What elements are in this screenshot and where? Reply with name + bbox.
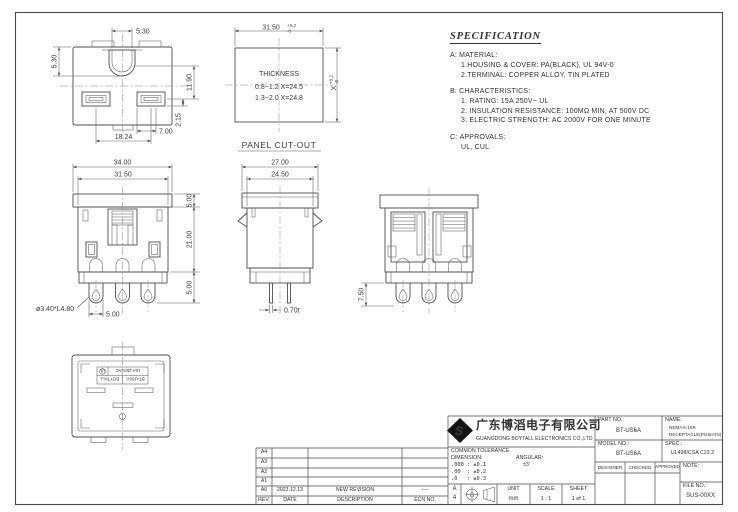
cutout-thickness-title: THICKNESS — [259, 71, 299, 78]
spec-item: 2. INSULATION RESISTANCE: 100MΩ MIN, AT … — [461, 107, 738, 117]
file-no-value: SUS-00XX — [686, 493, 715, 500]
cutout-caption: PANEL CUT-OUT — [242, 140, 317, 150]
spec-section-heading: CHARACTERISTICS: — [459, 88, 530, 95]
angular-value: ±3' — [523, 463, 530, 469]
side-dim-2700: 27.00 — [271, 160, 289, 167]
revision-row-rev: A0 — [256, 488, 272, 494]
bottom-label-rating: 15A 250VAC — [116, 368, 141, 373]
face-dim-1190: 11.90 — [187, 74, 194, 91]
face-dim-top-offset: 5.30 — [52, 55, 59, 69]
spec-value: UL498/CSA C22.2 — [663, 451, 722, 457]
cutout-thickness-row2: 1.3~2.0 X=24.8 — [255, 95, 303, 102]
spec-section-approvals: C: APPROVALS: UL, CUL — [450, 134, 738, 153]
part-no-value: BT-US6A — [595, 428, 662, 435]
designer-label: DESIGNER — [595, 465, 625, 470]
revision-row-description: NEW REVISION — [308, 488, 402, 494]
revision-header-rev: REV. — [256, 498, 272, 504]
spec-item: UL, CUL — [461, 143, 738, 153]
cutout-tol-minus: -0 — [287, 29, 292, 34]
cutout-tol-plus: +0.2 — [287, 23, 297, 28]
unit-value: mm — [497, 496, 530, 503]
front-view: 34.00 31.50 5.00 21.00 5.00 ø3.40*L4.80 … — [36, 160, 200, 319]
revision-row-rev: A3 — [256, 460, 272, 466]
cutout-x-tol-plus: +0.2 — [329, 74, 334, 84]
sheet-size-letter: A — [448, 486, 461, 493]
angular-label: ANGULAR: — [516, 456, 543, 462]
revision-header-description: DESCRIPTION — [308, 498, 402, 504]
scale-value: 1 : 1 — [530, 496, 562, 502]
panel-cutout-view: 31.50 +0.2 -0 X +0.2 -0 THICKNESS 0.8~1.… — [225, 23, 341, 151]
face-dim-1824: 18.24 — [115, 134, 133, 141]
company-logo: S — [447, 418, 473, 443]
part-no-label: PART NO.: — [598, 418, 624, 424]
bottom-label-ul-mark: UL — [99, 369, 105, 374]
bottom-label-brand: BOYTALL — [99, 377, 119, 382]
front-dim-500-bottom: 5.00 — [187, 281, 194, 295]
sheet-size-number: 4 — [448, 495, 461, 502]
specification-title: SPECIFICATION — [450, 31, 541, 44]
checked-label: CHECKED — [625, 465, 655, 470]
unit-label: UNIT — [497, 487, 530, 493]
scale-label: SCALE — [530, 487, 562, 493]
cutout-x-tol-minus: -0 — [334, 79, 339, 84]
face-dim-slot-width: 5.30 — [136, 29, 150, 36]
revision-header-date: DATE — [272, 498, 308, 504]
drawing-sheet: 5.30 5.30 11.90 2.15 7.00 18.24 31.50 — [0, 0, 738, 512]
svg-text:S: S — [455, 424, 463, 438]
bottom-label-model: BT-US6A — [126, 377, 144, 382]
cutout-thickness-row1: 0.8~1.2 X=24.5 — [255, 84, 303, 91]
spec-item: 1.HOUSING & COVER: PA(BLACK), UL 94V-0 — [461, 61, 738, 71]
front-dim-2100: 21.00 — [187, 231, 194, 249]
side-dim-2450: 24.50 — [271, 172, 289, 179]
revision-row-date: 2023.12.13 — [272, 488, 308, 494]
cutout-dim-width: 31.50 — [262, 25, 280, 32]
revision-row-rev: A1 — [256, 479, 272, 485]
sheet-label: SHEET — [562, 487, 595, 493]
model-no-label: MODEL NO.: — [598, 442, 629, 448]
face-dim-700: 7.00 — [159, 129, 173, 136]
sheet-value: 1 of 1 — [562, 496, 595, 502]
cutout-dim-x: X — [331, 85, 338, 90]
face-view: 5.30 5.30 11.90 2.15 7.00 18.24 — [52, 28, 200, 144]
spec-section-characteristics: B: CHARACTERISTICS: 1. RATING: 15A 250V~… — [450, 88, 738, 126]
model-no-value: BT-US6A — [595, 451, 662, 458]
bottom-view: UL 15A 250VAC BOYTALL BT-US6A — [72, 342, 170, 449]
front-dim-500-top: 5.00 — [187, 194, 194, 208]
spec-item: 3. ELECTRIC STRENGTH: AC 2000V FOR ONE M… — [461, 116, 738, 126]
side-dim-070: 0.70t — [284, 308, 300, 315]
spec-section-heading: APPROVALS: — [460, 134, 506, 141]
spec-section-material: A: MATERIAL: 1.HOUSING & COVER: PA(BLACK… — [450, 52, 738, 80]
tolerance-row-2: .00 : ±0.2 — [451, 470, 486, 476]
name-value-line2: RECEPTACLE(PUSH-IN) — [669, 432, 721, 437]
projection-symbol-icon — [465, 487, 495, 502]
front-dim-pin: ø3.40*L4.80 — [36, 306, 74, 313]
revision-row-rev: A2 — [256, 470, 272, 476]
tolerance-title: COMMON TOLERANCE — [451, 449, 509, 455]
approved-label: APPROVED — [655, 465, 680, 470]
back-view: 7.50 — [359, 188, 479, 314]
front-dim-3400: 34.00 — [114, 160, 132, 167]
spec-item: 2.TERMINAL: COPPER ALLOY, TIN PLATED — [461, 71, 738, 81]
side-view: 27.00 24.50 0.70t — [238, 160, 322, 315]
spec-item: 1. RATING: 15A 250V~ UL — [461, 97, 738, 107]
spec-section-label: C: — [450, 134, 457, 141]
back-dim-750: 7.50 — [359, 288, 366, 302]
file-no-label: FILE NO.: — [683, 484, 707, 490]
tolerance-row-1: .000 : ±0.1 — [451, 463, 486, 469]
company-name-cn: 广东博滔电子有限公司 — [476, 419, 593, 432]
tolerance-row-3: .0 : ±0.3 — [451, 477, 486, 483]
note-label: NOTE: — [683, 464, 699, 470]
revision-header-ecn: ECN NO. — [402, 498, 448, 504]
front-dim-500-pitch: 5.00 — [106, 312, 120, 319]
front-dim-3150: 31.50 — [114, 172, 132, 179]
company-name-en: GUANGDONG BOYTALL ELECTRONICS CO.,LTD — [476, 437, 593, 443]
revision-row-ecn: ---- — [402, 488, 448, 494]
spec-section-heading: MATERIAL: — [459, 52, 497, 59]
spec-section-label: B: — [450, 88, 457, 95]
spec-label: SPEC.: — [665, 442, 682, 448]
face-dim-215: 2.15 — [176, 113, 183, 127]
dimension-label: DIMENSION: — [451, 456, 483, 462]
name-value-line1: NEMA 6-15R — [669, 425, 696, 430]
spec-section-label: A: — [450, 52, 457, 59]
revision-row-rev: A4 — [256, 450, 272, 456]
specification-block: SPECIFICATION A: MATERIAL: 1.HOUSING & C… — [450, 26, 738, 152]
name-label: NAME: — [665, 418, 682, 424]
